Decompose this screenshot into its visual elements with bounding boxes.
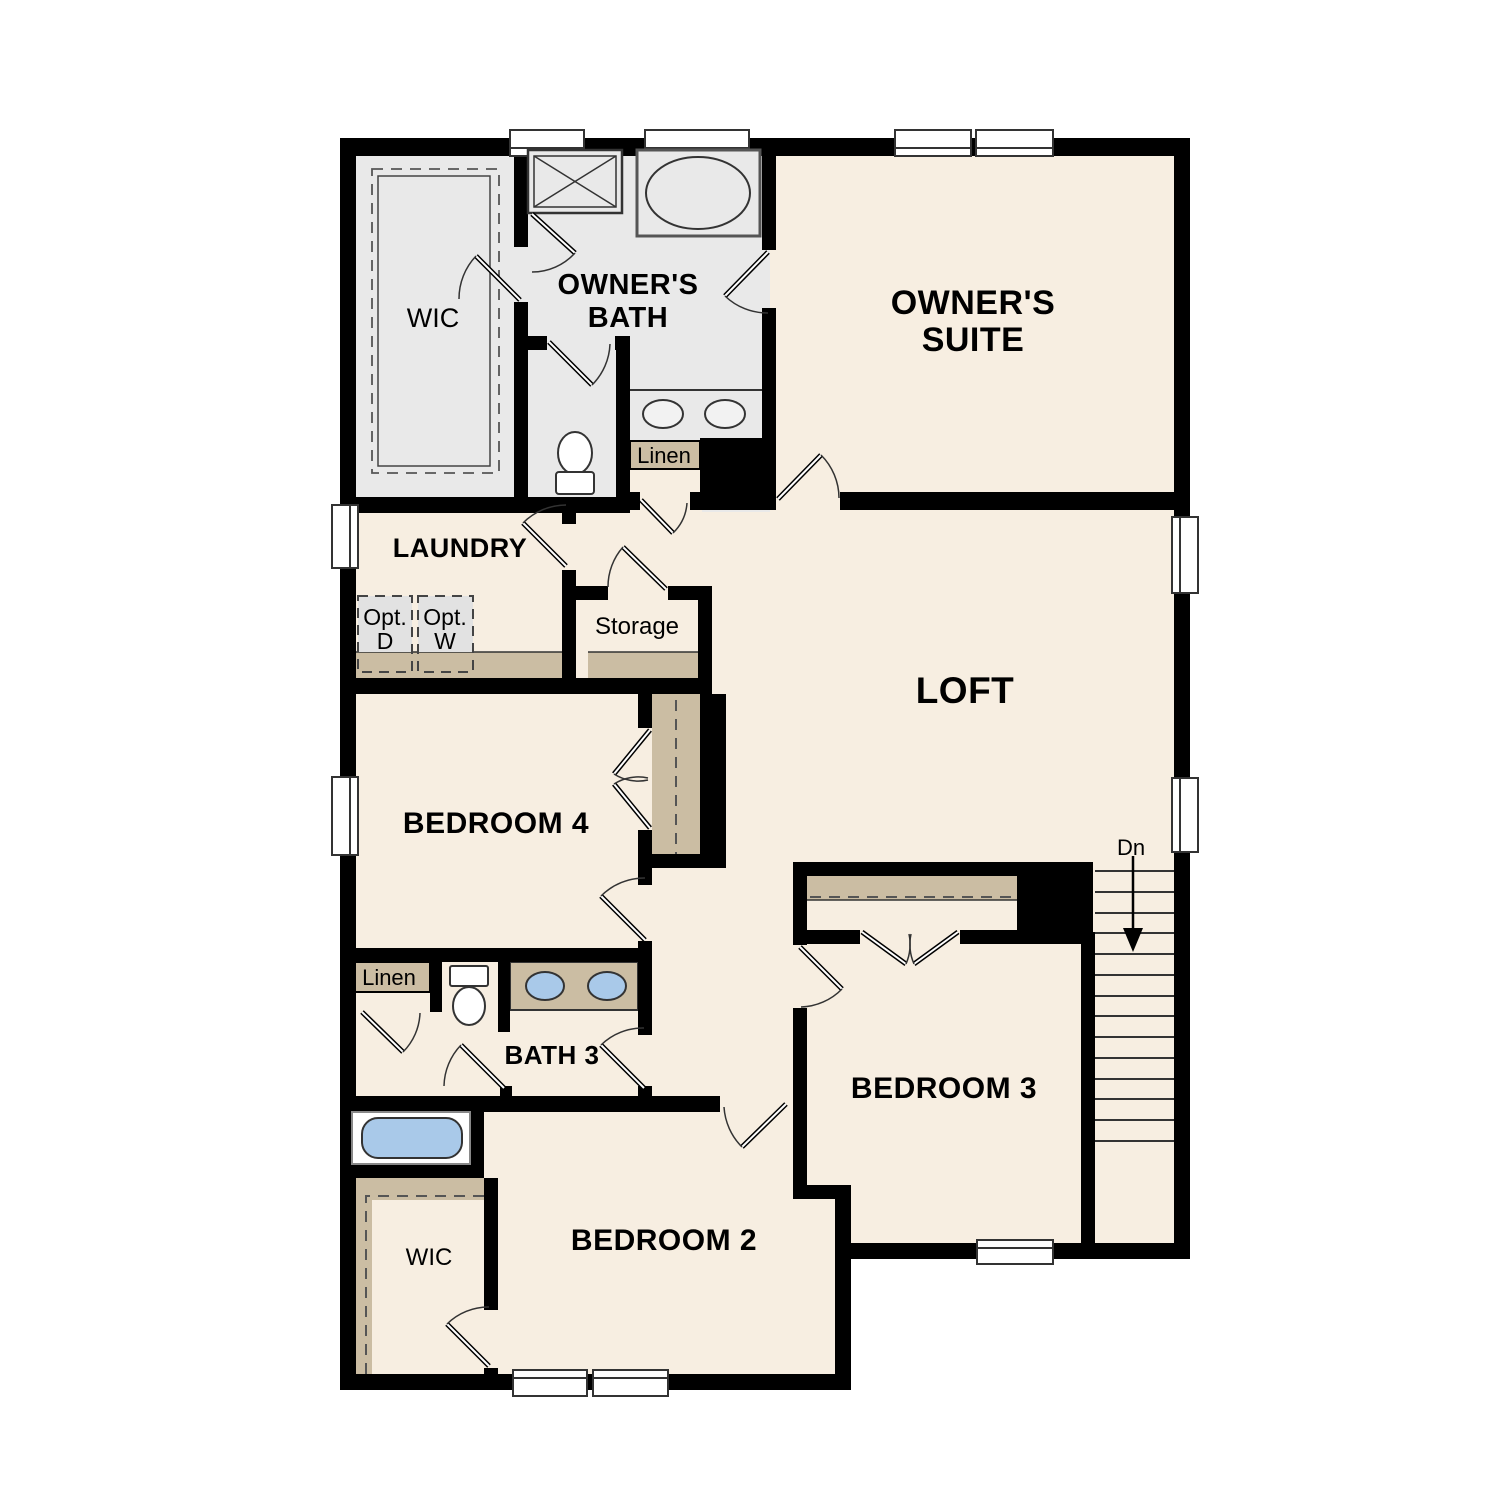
- bedroom2-label: BEDROOM 2: [571, 1224, 757, 1257]
- loft-label: LOFT: [916, 670, 1015, 711]
- sink: [526, 972, 564, 1000]
- owners-suite-label-1: OWNER'S: [891, 284, 1056, 322]
- bedroom4-label: BEDROOM 4: [403, 807, 589, 840]
- window-suite-2: [976, 130, 1053, 156]
- window-bedroom2-1: [513, 1370, 587, 1396]
- wic-lower-label: WIC: [406, 1244, 453, 1271]
- owners-toilet: [556, 432, 594, 494]
- linen-lower-label: Linen: [362, 965, 416, 990]
- opt-washer-label-1: Opt.: [423, 604, 466, 630]
- window-loft-1: [1172, 517, 1198, 593]
- wic-upper-label: WIC: [407, 303, 459, 333]
- storage-label: Storage: [595, 613, 679, 640]
- bath3-tub: [352, 1112, 470, 1164]
- window-bedroom4: [332, 777, 358, 855]
- linen-upper-label: Linen: [637, 443, 691, 468]
- wic-lower-shelf-side: [356, 1178, 372, 1374]
- bath3-label: BATH 3: [505, 1040, 600, 1070]
- floorplan-drawing: WIC OWNER'S BATH OWNER'S SUITE LAUNDRY O…: [0, 0, 1500, 1500]
- bedroom3-label: BEDROOM 3: [851, 1072, 1037, 1105]
- owners-bath-label-2: BATH: [588, 302, 668, 334]
- sink: [588, 972, 626, 1000]
- stairs-down-label: Dn: [1117, 835, 1145, 860]
- bedroom4-closet-shelf: [652, 694, 700, 854]
- window-bedroom2-2: [593, 1370, 668, 1396]
- owners-suite-label-2: SUITE: [922, 321, 1025, 359]
- owners-tub: [637, 150, 760, 236]
- sink: [643, 400, 683, 428]
- window-suite-1: [895, 130, 971, 156]
- laundry-counter: [352, 652, 576, 678]
- opt-washer-label-2: W: [434, 628, 456, 654]
- laundry-label: LAUNDRY: [393, 533, 528, 563]
- shower: [528, 150, 622, 213]
- sink: [705, 400, 745, 428]
- chase-stairs: [1017, 862, 1093, 932]
- bath3-toilet: [450, 966, 488, 1025]
- opt-dryer-label-2: D: [377, 628, 394, 654]
- storage-shelf: [588, 652, 698, 680]
- window-bedroom3: [977, 1240, 1053, 1264]
- window-loft-2: [1172, 778, 1198, 852]
- floorplan-page: WIC OWNER'S BATH OWNER'S SUITE LAUNDRY O…: [0, 0, 1500, 1500]
- opt-dryer-label-1: Opt.: [363, 604, 406, 630]
- owners-bath-label-1: OWNER'S: [558, 269, 699, 301]
- chase-upper: [700, 438, 763, 510]
- window-laundry: [332, 505, 358, 568]
